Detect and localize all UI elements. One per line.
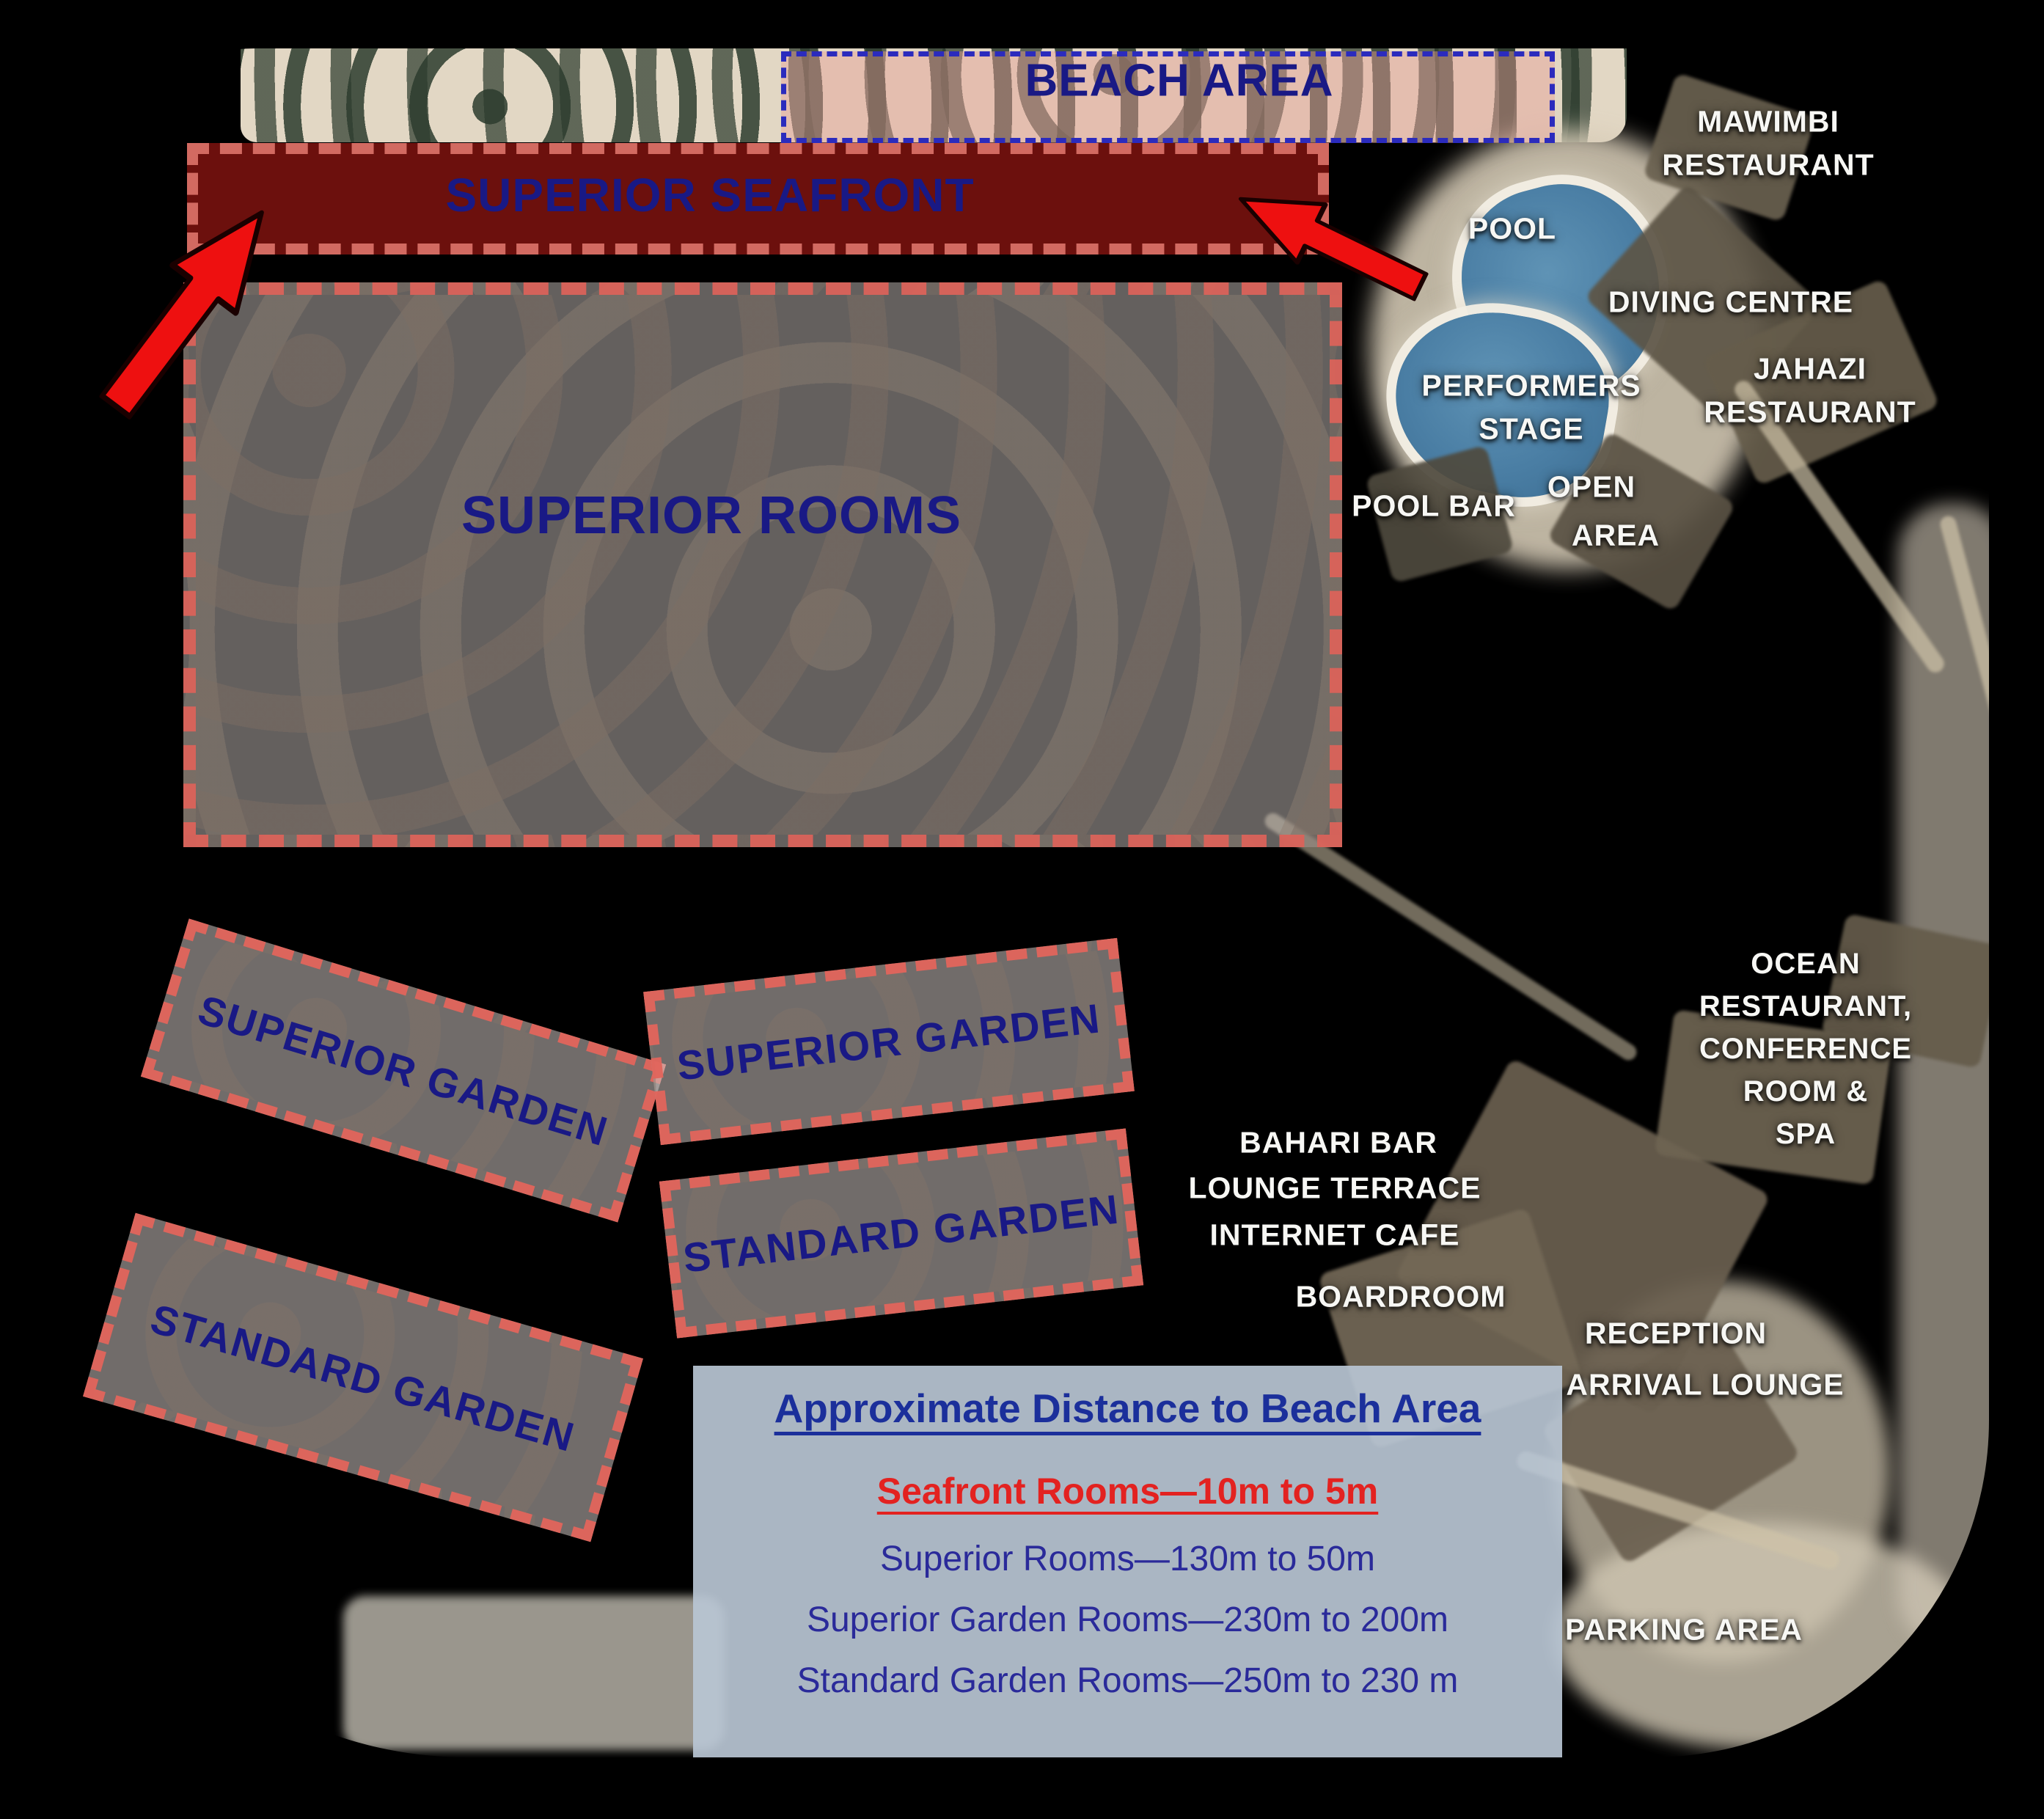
open-area-label-line1: OPEN (1547, 465, 1635, 508)
satellite-map: SUPERIOR GARDEN SUPERIOR GARDEN STANDARD… (57, 48, 1989, 1757)
zone-superior-garden-left: SUPERIOR GARDEN (141, 919, 666, 1223)
internet-cafe-label: INTERNET CAFE (1210, 1213, 1460, 1256)
zone-superior-garden-right: SUPERIOR GARDEN (643, 938, 1135, 1145)
pool-label: POOL (1468, 207, 1556, 250)
legend-title: Approximate Distance to Beach Area (693, 1385, 1562, 1432)
path-central-diagonal (1261, 810, 1639, 1063)
legend-seafront-distance: Seafront Rooms—10m to 5m (693, 1470, 1562, 1512)
ocean-restaurant-label: OCEAN RESTAURANT, CONFERENCE ROOM & SPA (1699, 943, 1912, 1155)
open-area-label-line2: AREA (1572, 513, 1660, 557)
pool-bar-label: POOL BAR (1352, 484, 1516, 527)
boardroom-label: BOARDROOM (1296, 1275, 1506, 1318)
arrival-lounge-label: ARRIVAL LOUNGE (1566, 1363, 1844, 1406)
jahazi-restaurant-label: JAHAZI RESTAURANT (1704, 348, 1916, 435)
legend-superior-garden-distance: Superior Garden Rooms—230m to 200m (693, 1600, 1562, 1640)
legend-standard-garden-distance: Standard Garden Rooms—250m to 230 m (693, 1661, 1562, 1701)
superior-garden-right-label: SUPERIOR GARDEN (675, 994, 1103, 1089)
bahari-bar-label: BAHARI BAR (1239, 1121, 1437, 1164)
standard-garden-right-label: STANDARD GARDEN (681, 1185, 1122, 1281)
beach-area-label: BEACH AREA (1025, 55, 1333, 107)
superior-seafront-label: SUPERIOR SEAFRONT (445, 168, 974, 222)
diving-centre-label: DIVING CENTRE (1608, 280, 1853, 323)
performers-stage-label: PERFORMERS STAGE (1421, 365, 1641, 452)
legend-panel: Approximate Distance to Beach Area Seafr… (693, 1366, 1562, 1757)
reception-label: RECEPTION (1585, 1311, 1767, 1355)
mawimbi-restaurant-label: MAWIMBI RESTAURANT (1662, 100, 1874, 188)
zone-standard-garden-left: STANDARD GARDEN (83, 1213, 643, 1542)
superior-garden-left-label: SUPERIOR GARDEN (193, 986, 614, 1156)
zone-standard-garden-right: STANDARD GARDEN (659, 1128, 1143, 1338)
parking-area-label: PARKING AREA (1565, 1608, 1803, 1651)
superior-rooms-label: SUPERIOR ROOMS (461, 486, 961, 546)
zone-superior-rooms (183, 282, 1342, 847)
lounge-terrace-label: LOUNGE TERRACE (1189, 1166, 1481, 1209)
construction-patch (343, 1596, 725, 1750)
standard-garden-left-label: STANDARD GARDEN (145, 1294, 580, 1460)
legend-superior-distance: Superior Rooms—130m to 50m (693, 1539, 1562, 1579)
resort-map-slide: SUPERIOR GARDEN SUPERIOR GARDEN STANDARD… (0, 0, 2044, 1819)
